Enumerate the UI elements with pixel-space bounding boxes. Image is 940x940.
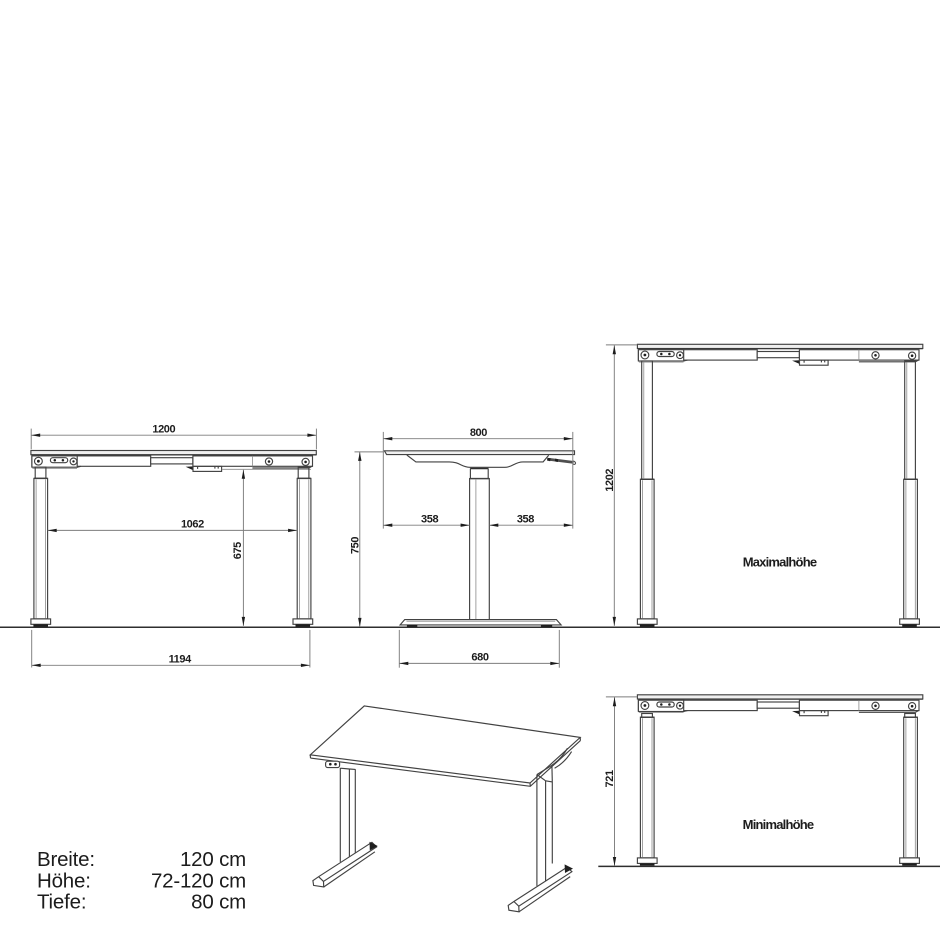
svg-text:1202: 1202: [604, 469, 616, 492]
svg-text:72-120 cm: 72-120 cm: [151, 870, 246, 893]
svg-text:1200: 1200: [152, 424, 175, 436]
svg-text:Höhe:: Höhe:: [37, 870, 91, 893]
svg-text:Breite:: Breite:: [37, 848, 95, 871]
svg-text:Tiefe:: Tiefe:: [37, 891, 86, 914]
svg-text:675: 675: [232, 542, 244, 559]
svg-text:120 cm: 120 cm: [180, 848, 246, 871]
svg-text:750: 750: [350, 537, 362, 554]
svg-text:Maximalhöhe: Maximalhöhe: [743, 555, 817, 570]
svg-text:680: 680: [471, 652, 488, 664]
svg-text:721: 721: [604, 770, 616, 787]
svg-text:80 cm: 80 cm: [191, 891, 246, 914]
svg-text:1194: 1194: [169, 653, 193, 665]
svg-text:800: 800: [470, 427, 487, 439]
svg-text:Minimalhöhe: Minimalhöhe: [743, 817, 814, 832]
svg-text:358: 358: [517, 514, 534, 526]
svg-text:358: 358: [421, 514, 438, 526]
svg-text:1062: 1062: [181, 519, 204, 531]
